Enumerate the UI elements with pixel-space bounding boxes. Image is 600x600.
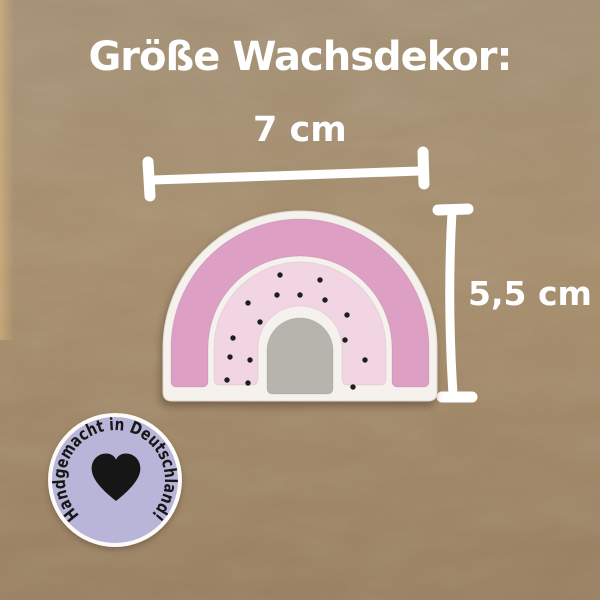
annotation-layer: Handgemacht in Deutschland!: [0, 0, 600, 600]
rainbow-center-dome: [267, 318, 333, 394]
rainbow-wax-decor: [163, 211, 437, 401]
painted-dot: [342, 337, 347, 342]
painted-dot: [245, 300, 250, 305]
painted-dot: [257, 319, 262, 324]
painted-dot: [344, 312, 349, 317]
painted-dot: [297, 292, 302, 297]
painted-dot: [317, 277, 322, 282]
painted-dot: [224, 377, 229, 382]
painted-dot: [274, 292, 279, 297]
painted-dot: [322, 297, 327, 302]
painted-dot: [362, 357, 367, 362]
painted-dot: [230, 335, 235, 340]
painted-dot: [245, 380, 250, 385]
handmade-badge: Handgemacht in Deutschland!: [48, 413, 182, 547]
painted-dot: [227, 354, 232, 359]
width-measurement-line: [148, 152, 424, 196]
painted-dot: [247, 357, 252, 362]
height-measurement-line: [438, 209, 472, 397]
painted-dot: [277, 272, 282, 277]
product-photo: Größe Wachsdekor: 7 cm 5,5 cm: [0, 0, 600, 600]
painted-dot: [350, 384, 355, 389]
